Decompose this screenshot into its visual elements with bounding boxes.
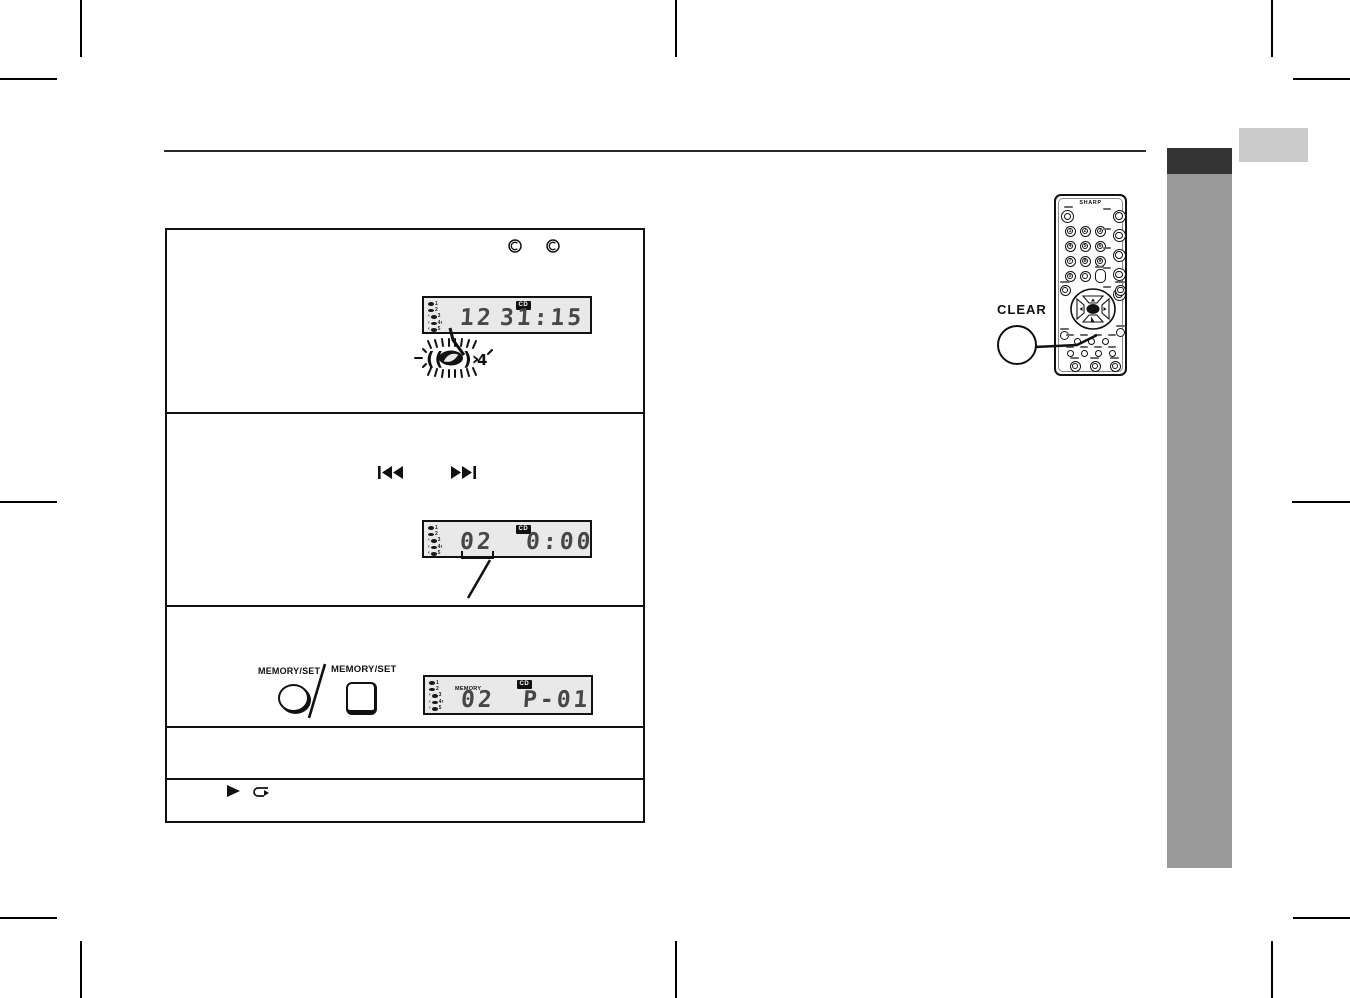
- crop-mark: [675, 0, 677, 57]
- remote-small-button: [1080, 271, 1091, 282]
- digit-button: 7: [1065, 256, 1076, 267]
- prev-track-icon: [378, 466, 404, 479]
- section-divider: [167, 726, 643, 728]
- memory-set-label-main: MEMORY/SET: [331, 664, 397, 675]
- section-divider: [167, 605, 643, 607]
- flashing-disc-icon: (( )› 4: [414, 336, 494, 380]
- button-label-mark: [1090, 357, 1099, 359]
- disc-indicator-stack: 1 2 ‹3 ‹4‹ ‹5: [429, 680, 443, 712]
- digit-button: 0: [1065, 271, 1076, 282]
- cd-direct-label-mark: [1103, 267, 1111, 269]
- cd-direct-label-mark: [1103, 228, 1111, 230]
- crop-mark: [0, 917, 57, 919]
- crop-mark: [1271, 0, 1273, 57]
- section-divider: [167, 412, 643, 414]
- power-label-mark: [1064, 206, 1073, 208]
- dpad: [1070, 288, 1116, 330]
- preset-button: [1060, 285, 1071, 296]
- repeat-icon: [252, 786, 270, 798]
- digit-button: 5: [1080, 241, 1091, 252]
- header-rule: [164, 150, 1146, 152]
- preset-button: [1115, 285, 1126, 296]
- button-label-mark: [1108, 346, 1116, 348]
- svg-text:4: 4: [477, 351, 487, 369]
- slash-separator: [305, 662, 329, 720]
- digit-button: 4: [1065, 241, 1076, 252]
- clear-connector-line: [1033, 328, 1101, 352]
- disc-indicator-row: ‹5: [428, 551, 442, 557]
- lcd-display-2: 1 2 ‹3 ‹4‹ ‹5 CD 02 0:00: [422, 520, 592, 558]
- crop-mark: [1293, 78, 1350, 80]
- crop-mark: [1293, 917, 1350, 919]
- cd-direct-button: [1113, 268, 1126, 281]
- lcd-program-digits: P-01: [522, 688, 591, 712]
- disc-indicator-row: ‹5: [428, 327, 442, 333]
- lcd-time-digits: 31:15: [499, 306, 585, 330]
- digit-button: 6: [1095, 241, 1106, 252]
- section-tab: [1239, 128, 1308, 162]
- crop-mark: [1292, 501, 1350, 503]
- crop-mark: [675, 941, 677, 998]
- sidebar: [1167, 174, 1232, 868]
- next-track-icon: [450, 466, 476, 479]
- plus-ten-button: [1095, 269, 1106, 283]
- lcd-track-digits: 02: [460, 688, 495, 712]
- crop-mark: [80, 0, 82, 57]
- lcd-display-3: 1 2 ‹3 ‹4‹ ‹5 MEMORY CD 02 P-01: [423, 675, 593, 715]
- sidebar-dark-block: [1167, 148, 1232, 174]
- digit-button: 8: [1080, 256, 1091, 267]
- digit-button: 1: [1065, 226, 1076, 237]
- clear-button: [997, 325, 1037, 365]
- preset-label-mark: [1060, 281, 1070, 283]
- remote-bottom-button: [1110, 361, 1121, 372]
- dpad-side-label-mark: [1116, 325, 1125, 327]
- disc-icon: [507, 238, 523, 254]
- power-button: [1061, 210, 1074, 223]
- manual-page: 1 2 ‹3 ‹4‹ ‹5 CD 12 31:15: [0, 0, 1350, 998]
- disc-icon: [545, 238, 561, 254]
- cd-direct-button: [1113, 249, 1126, 262]
- remote-bottom-button: [1070, 361, 1081, 372]
- digit-button: 9: [1095, 256, 1106, 267]
- remote-bottom-button: [1090, 361, 1101, 372]
- disc-indicator-stack: 1 2 ‹3 ‹4‹ ‹5: [428, 525, 442, 557]
- button-label-mark: [1070, 357, 1079, 359]
- cd-direct-label-mark: [1103, 247, 1111, 249]
- button-label-mark: [1108, 334, 1116, 336]
- play-icon: [227, 785, 240, 797]
- disc-indicator-stack: 1 2 ‹3 ‹4‹ ‹5: [428, 301, 442, 333]
- cd-direct-button: [1113, 229, 1126, 242]
- button-label-mark: [1110, 357, 1119, 359]
- remote-small-button: [1109, 350, 1116, 357]
- preset-label-mark: [1115, 281, 1125, 283]
- cd-direct-label-mark: [1103, 208, 1111, 210]
- cd-direct-button: [1113, 210, 1126, 223]
- memory-set-square-button: [346, 682, 377, 715]
- digit-button: 2: [1080, 226, 1091, 237]
- crop-mark: [0, 501, 57, 503]
- crop-mark: [1271, 941, 1273, 998]
- callout-line: [462, 558, 494, 600]
- instruction-panel: 1 2 ‹3 ‹4‹ ‹5 CD 12 31:15: [165, 228, 645, 823]
- remote-small-button: [1116, 328, 1125, 337]
- crop-mark: [0, 78, 57, 80]
- clear-label: CLEAR: [997, 302, 1047, 317]
- lcd-time-digits: 0:00: [525, 530, 594, 554]
- remote-small-button: [1102, 338, 1109, 345]
- crop-mark: [80, 941, 82, 998]
- section-divider: [167, 778, 643, 780]
- disc-indicator-row: ‹5: [429, 706, 443, 712]
